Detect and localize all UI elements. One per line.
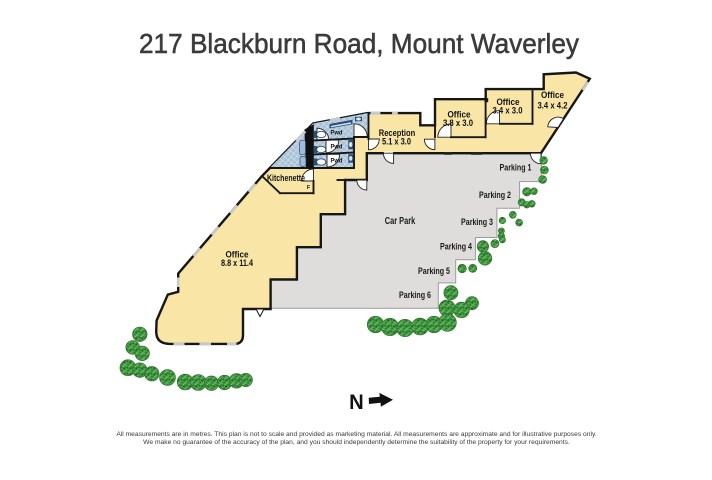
svg-text:217 Blackburn Road, Mount Wave: 217 Blackburn Road, Mount Waverley (139, 28, 579, 59)
svg-text:5.1 x 3.0: 5.1 x 3.0 (382, 135, 411, 146)
svg-text:Parking 5: Parking 5 (418, 266, 450, 276)
svg-text:N: N (349, 390, 364, 414)
svg-text:3.4 x 4.2: 3.4 x 4.2 (538, 100, 568, 111)
svg-text:Parking 2: Parking 2 (479, 190, 511, 200)
svg-text:Kitchenette: Kitchenette (267, 173, 305, 183)
svg-text:3.8 x 3.0: 3.8 x 3.0 (443, 117, 473, 128)
svg-text:Pwd: Pwd (331, 130, 343, 137)
svg-text:3.4 x 3.0: 3.4 x 3.0 (493, 105, 523, 116)
svg-text:We make no guarantee of the ac: We make no guarantee of the accuracy of … (143, 439, 570, 446)
svg-text:Pwd: Pwd (331, 157, 343, 164)
svg-text:Office: Office (541, 89, 564, 100)
svg-text:Parking 4: Parking 4 (440, 242, 472, 252)
svg-text:Pwd: Pwd (331, 144, 343, 151)
svg-text:Parking 1: Parking 1 (500, 162, 532, 172)
svg-text:8.8 x 11.4: 8.8 x 11.4 (221, 257, 254, 268)
svg-text:Parking 6: Parking 6 (399, 290, 431, 300)
svg-text:Parking 3: Parking 3 (461, 217, 493, 227)
svg-text:Car Park: Car Park (385, 216, 416, 227)
svg-text:All measurements are in metres: All measurements are in metres. This pla… (116, 431, 597, 438)
